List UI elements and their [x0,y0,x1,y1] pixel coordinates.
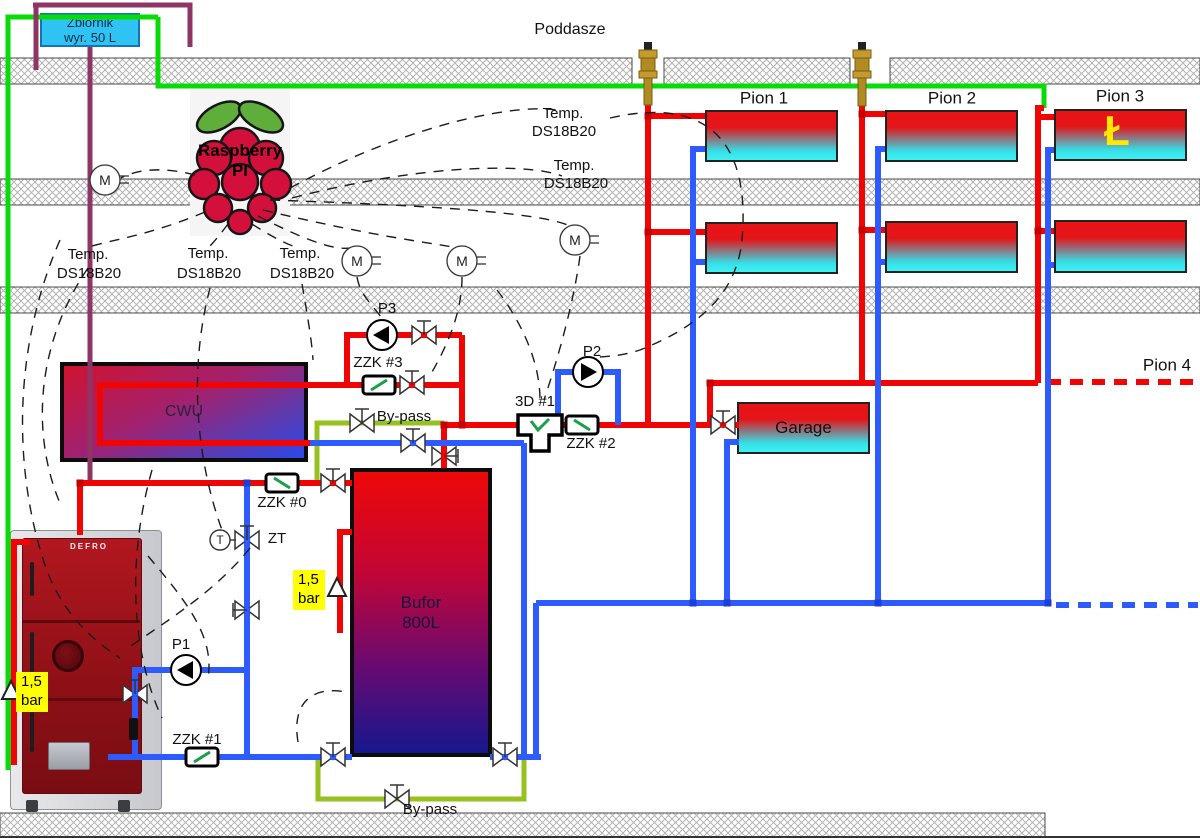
buffer-tank: Bufor 800L [350,468,492,757]
valve-icon [400,371,424,394]
pipe-junction [707,380,714,387]
pipe-junction [244,480,251,487]
motor-actuator-icon: M [560,225,599,255]
pipe-junction [645,113,652,120]
diagram-label: Temp. [543,106,584,123]
sensor-wire [297,691,346,742]
boiler-ash-door [48,742,90,770]
floor-slab [0,813,1045,838]
zzk-valve-icon [266,474,298,492]
diagram-label: 3D #1 [515,394,555,411]
pipe-green [158,17,1044,108]
diagram-label: ZZK #3 [353,355,402,372]
valve-icon [233,601,259,619]
pressure-badge-line: bar [298,590,320,609]
cwu-tank-label: CWU [165,403,203,421]
sensor-wire [544,256,580,400]
sensor-wire [290,109,556,188]
raspberry-pi-controller [190,90,290,236]
radiator [885,110,1018,162]
valve-icon [493,743,517,766]
pipe-junction [645,229,652,236]
pipe-blue [693,149,705,603]
valve-icon [432,447,458,465]
pressure-badge-line: 1,5 [298,571,320,590]
air-vent-icon [853,42,871,106]
pump-p2-icon [573,357,603,387]
thermometer-icon: T [210,530,236,550]
expansion-tank-label-2: wyr. 50 L [64,30,116,45]
radiator [705,110,838,162]
pipe-blue [1048,150,1054,603]
floor-slab [0,287,1200,313]
diagram-label: DS18B20 [177,266,241,283]
motor-actuator-icon: M [342,246,381,276]
diagram-label: ZZK #2 [566,436,615,453]
floor-slab [0,179,1200,205]
radiator [705,222,838,274]
svg-text:M: M [99,172,111,188]
svg-text:M: M [456,253,468,269]
air-vent-icon [639,42,657,105]
radiator [1054,220,1187,273]
buffer-tank-label-2: 800L [402,613,440,633]
pipe-junction [77,480,84,487]
diagram-label: Temp. [68,247,109,264]
diagram-label: DS18B20 [544,176,608,193]
diagram-label: Pion 2 [928,90,976,109]
sensor-wire [302,284,313,360]
sensor-wire [432,277,462,372]
zzk-valve-icon [186,748,218,766]
pipe-junction [441,422,448,429]
sensor-wire [292,168,562,198]
valve-icon [321,469,345,492]
zzk-valve-icon [363,376,395,394]
diagram-label: ZZK #0 [257,495,306,512]
diagram-label: ZT [268,531,286,548]
radiator-label: Garage [739,404,868,452]
svg-text:M: M [351,253,363,269]
sensor-wire [270,200,570,226]
sensor-wire [92,212,205,246]
floor-slab [0,58,632,84]
diagram-label: P1 [172,637,190,654]
pipe-olive [318,757,524,799]
diagram-label: DS18B20 [532,124,596,141]
valve-icon [711,411,735,434]
diagram-label: P3 [378,301,396,318]
diagram-label: By-pass [403,802,457,819]
valve-icon [321,743,345,766]
pipe-junction [859,227,866,234]
diagram-label: Temp. [188,246,229,263]
radiator [1054,109,1187,161]
pipe-red [1038,108,1044,383]
three-way-valve-icon [518,415,562,451]
valve-icon [385,785,409,808]
cwu-tank: CWU [60,362,308,462]
safety-valve-icon [328,578,346,596]
floor-slab [664,58,850,84]
pipe-junction [1035,228,1042,235]
heating-schematic-canvas: Zbiornik wyr. 50 L CWU Bufor 800L DEFRO [0,0,1200,838]
sensor-wire [497,290,540,400]
diagram-label: P2 [583,344,601,361]
sensor-wire [121,170,195,178]
diagram-label: By-pass [377,409,431,426]
radiator: Garage [737,402,870,454]
pipe-junction [859,111,866,118]
pipe-junction [690,600,697,607]
diagram-label: Pion 3 [1096,88,1144,107]
diagram-label: Poddasze [534,21,605,39]
diagram-label: DS18B20 [270,266,334,283]
diagram-label: Pion 4 [1143,357,1191,376]
diagram-label: ZZK #1 [172,732,221,749]
motor-actuator-icon: M [447,246,486,276]
sensor-wire [357,277,383,320]
boiler-fan-icon [52,640,84,672]
pump-p1-icon [171,655,201,685]
pipe-blue [878,149,885,603]
pipe-junction [537,440,544,447]
pipe-red [347,335,462,385]
boiler-brand-label: DEFRO [70,542,108,551]
diagram-label: DS18B20 [57,266,121,283]
pipe-junction [1045,600,1052,607]
floor-slab [890,58,1200,84]
motor-actuator-icon: M [90,165,129,195]
diagram-label: Temp. [554,158,595,175]
pipe-blue [727,442,739,603]
buffer-tank-label-1: Bufor [401,593,442,613]
zzk-valve-icon [566,416,598,434]
radiator [885,221,1018,273]
sensor-wire [263,210,458,248]
valve-icon [401,429,425,452]
diagram-label: Pion 1 [740,90,788,109]
pipe-junction [875,600,882,607]
pipe-junction [459,422,466,429]
boiler-defro: DEFRO [8,528,162,814]
pressure-badge: 1,5bar [293,570,325,610]
diagram-label: Temp. [280,246,321,263]
pipe-junction [724,600,731,607]
expansion-tank-label-1: Zbiornik [67,15,113,30]
svg-text:M: M [569,232,581,248]
pump-p3-icon [367,320,397,350]
expansion-tank: Zbiornik wyr. 50 L [40,13,140,47]
valve-icon [350,409,374,432]
valve-icon [412,321,436,344]
pipe-blue [558,372,618,425]
valve-icon [235,526,259,549]
svg-text:T: T [216,533,224,547]
